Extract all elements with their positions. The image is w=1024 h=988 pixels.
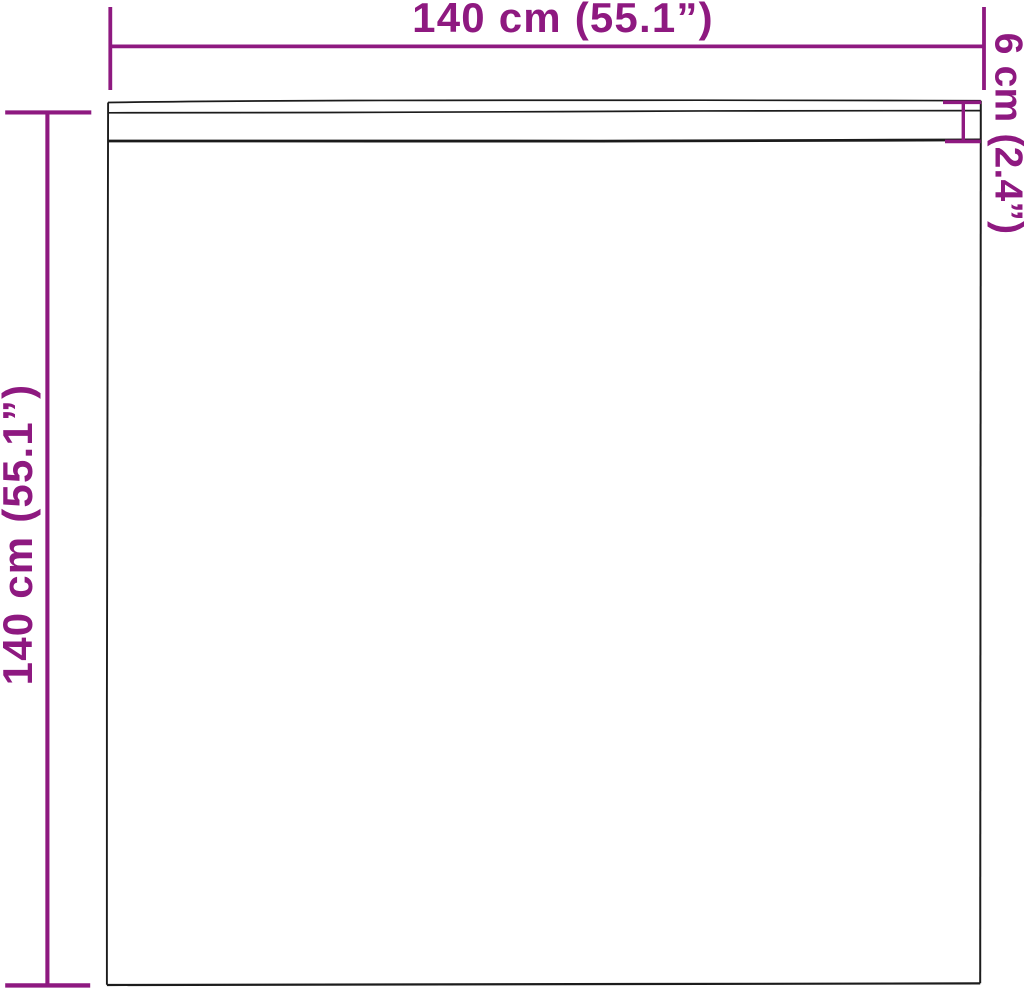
svg-text:140 cm (55.1”): 140 cm (55.1”)	[0, 384, 41, 686]
svg-text:140 cm (55.1”): 140 cm (55.1”)	[412, 0, 714, 41]
svg-text:6 cm (2.4”): 6 cm (2.4”)	[987, 33, 1024, 235]
